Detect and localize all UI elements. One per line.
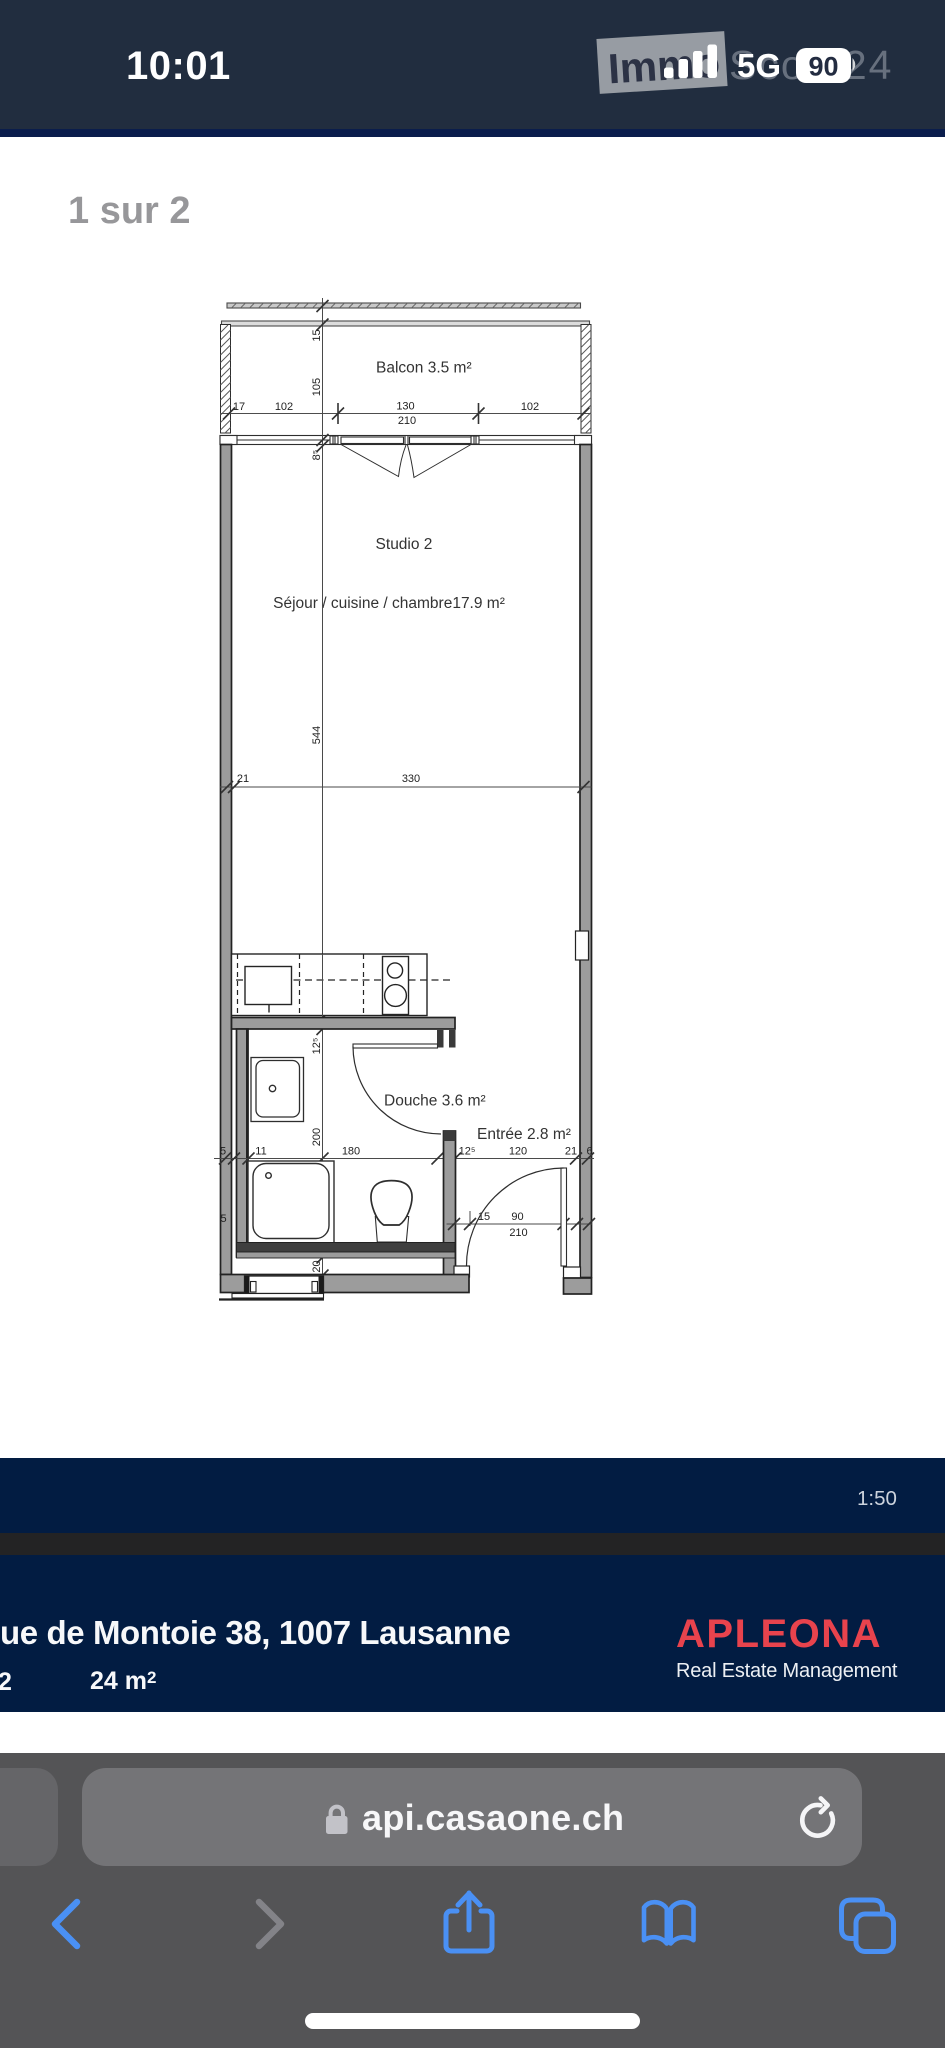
svg-text:544: 544 xyxy=(311,726,323,744)
svg-text:21: 21 xyxy=(237,773,249,785)
svg-text:Balcon 3.5 m²: Balcon 3.5 m² xyxy=(376,360,472,377)
svg-text:5: 5 xyxy=(220,1213,226,1225)
svg-text:200: 200 xyxy=(311,1128,323,1146)
svg-text:6: 6 xyxy=(586,1146,592,1158)
svg-text:17: 17 xyxy=(233,401,245,413)
svg-text:210: 210 xyxy=(398,415,416,427)
svg-text:180: 180 xyxy=(342,1146,360,1158)
svg-text:8⁵: 8⁵ xyxy=(311,450,323,461)
svg-text:Douche 3.6 m²: Douche 3.6 m² xyxy=(384,1093,486,1110)
svg-text:12⁵: 12⁵ xyxy=(311,1038,323,1055)
svg-text:210: 210 xyxy=(509,1227,527,1239)
svg-text:102: 102 xyxy=(275,401,293,413)
svg-text:5: 5 xyxy=(220,1146,226,1158)
svg-text:12⁵: 12⁵ xyxy=(459,1146,476,1158)
svg-text:90: 90 xyxy=(511,1211,523,1223)
svg-text:330: 330 xyxy=(402,773,420,785)
svg-text:Studio 2: Studio 2 xyxy=(376,536,433,553)
svg-text:21: 21 xyxy=(565,1146,577,1158)
svg-text:20: 20 xyxy=(311,1260,323,1272)
svg-text:102: 102 xyxy=(521,401,539,413)
svg-text:15: 15 xyxy=(311,329,323,341)
svg-text:120: 120 xyxy=(509,1146,527,1158)
svg-text:105: 105 xyxy=(311,378,323,396)
svg-text:Séjour / cuisine / chambre17.9: Séjour / cuisine / chambre17.9 m² xyxy=(273,595,505,612)
svg-text:130: 130 xyxy=(396,401,414,413)
svg-text:11: 11 xyxy=(255,1146,266,1158)
svg-text:Entrée 2.8 m²: Entrée 2.8 m² xyxy=(477,1126,571,1143)
